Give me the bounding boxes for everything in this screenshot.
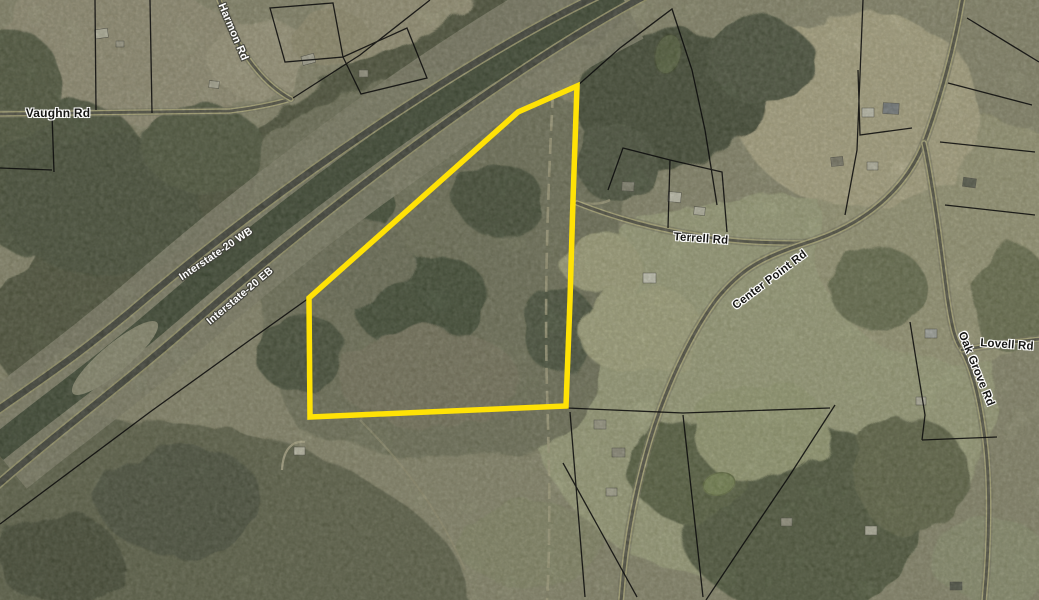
texture-light <box>0 0 1039 600</box>
aerial-map <box>0 0 1039 600</box>
photo-texture <box>0 0 1039 600</box>
map-canvas[interactable]: Vaughn RdHarmon RdInterstate-20 WBInters… <box>0 0 1039 600</box>
